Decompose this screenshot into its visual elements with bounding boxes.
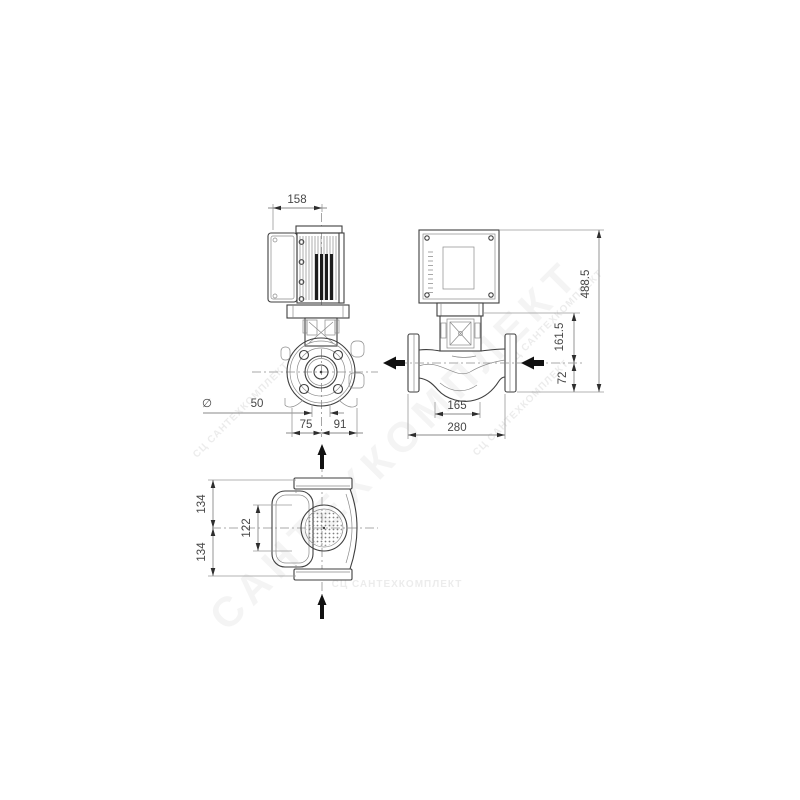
dim-axis-to-base-label: 72 xyxy=(557,372,569,385)
dim-axis-to-head-label: 161.5 xyxy=(554,323,566,352)
dim-axis-offsets: 75 91 xyxy=(286,408,363,437)
dim-left-offset-label: 75 xyxy=(300,419,313,431)
top-flange-upper xyxy=(294,478,352,489)
pump-drawing-canvas: САНТЕХКОМПЛЕКТ СЦ САНТЕХКОМПЛЕКТ СЦ САНТ… xyxy=(0,0,800,800)
volute-tab-right xyxy=(351,341,364,357)
dim-motor-width-label: 158 xyxy=(287,194,306,206)
motor-flange-plate xyxy=(287,305,349,318)
flow-arrow-inlet xyxy=(521,357,544,370)
diameter-symbol: ∅ xyxy=(202,398,212,410)
pump-drawing-page: САНТЕХКОМПЛЕКТ СЦ САНТЕХКОМПЛЕКТ СЦ САНТ… xyxy=(0,0,800,800)
dim-volute-width-label: 165 xyxy=(447,400,466,412)
volute-tab-right-lower xyxy=(349,373,364,388)
motor-end-plate xyxy=(339,233,344,303)
dim-motor-width: 158 xyxy=(268,194,327,230)
port-center xyxy=(320,371,323,374)
control-box xyxy=(419,230,499,303)
dim-port-diameter: ∅ 50 xyxy=(202,398,344,417)
dim-port-diameter-label: 50 xyxy=(251,398,264,410)
flow-arrow-bottom xyxy=(318,594,327,619)
top-flange-lower xyxy=(294,569,352,580)
front-view: 158 ∅ 50 75 91 xyxy=(202,194,378,437)
flow-arrow-outlet xyxy=(383,357,405,370)
watermark-small-diagonal: СЦ САНТЕХКОМПЛЕКТ xyxy=(191,360,291,460)
watermark-layer: САНТЕХКОМПЛЕКТ СЦ САНТЕХКОМПЛЕКТ СЦ САНТ… xyxy=(191,250,605,639)
dim-body-width-label: 122 xyxy=(241,518,253,537)
dim-lower-half-label: 134 xyxy=(196,542,208,562)
motor-neck xyxy=(437,303,483,316)
pump-lantern xyxy=(305,318,337,346)
dim-overall-height-label: 488.5 xyxy=(580,270,592,299)
dim-overall-length-label: 280 xyxy=(447,422,466,434)
motor-terminal-box xyxy=(268,233,297,302)
volute-tab-left xyxy=(281,347,290,360)
fan-center xyxy=(323,527,325,529)
dim-right-offset-label: 91 xyxy=(334,419,347,431)
motor-top-cap xyxy=(296,226,342,233)
watermark-small-horizontal: СЦ САНТЕХКОМПЛЕКТ xyxy=(332,579,463,590)
dim-upper-half-label: 134 xyxy=(196,494,208,514)
flow-arrow-top xyxy=(318,444,327,469)
